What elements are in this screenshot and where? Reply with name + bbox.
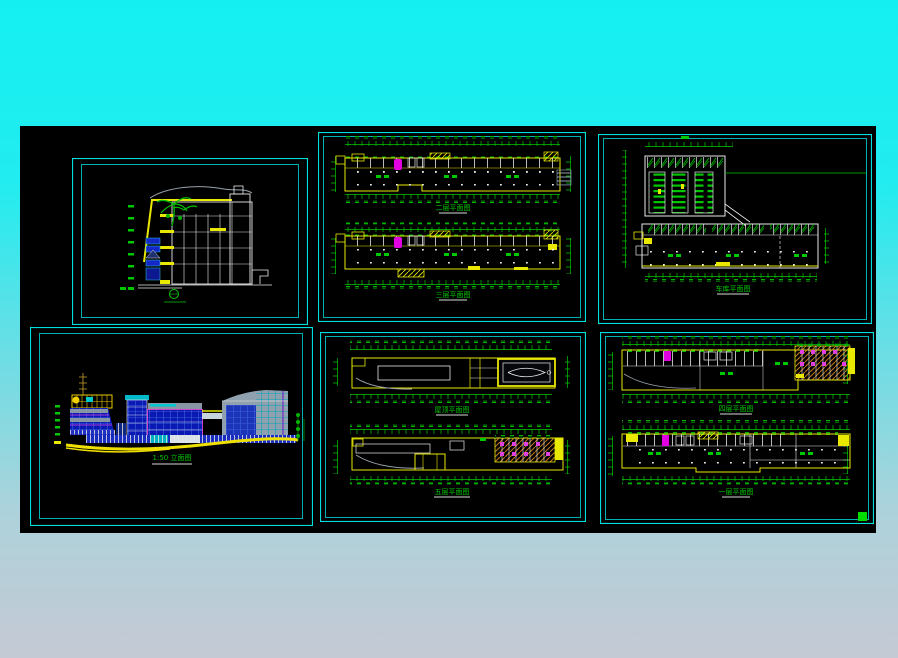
panel-building-section <box>72 158 308 325</box>
roof-trellis <box>72 395 112 408</box>
plan-title: 五层平面图 <box>435 488 470 496</box>
panel-mid-plans: 屋顶平面图 五 <box>320 332 586 522</box>
plan-title: 四层平面图 <box>719 405 754 413</box>
roof-plan: 屋顶平面图 <box>333 340 570 415</box>
panel-parking-plan: 车库平面图 <box>598 134 872 324</box>
fifth-floor-plan: 五层平面图 <box>333 424 570 497</box>
stair-core <box>394 237 402 248</box>
panel-elevation: 1:50 立面图 <box>30 327 313 526</box>
panel-lower-plans: 四层平面图 一层平面图 <box>600 332 874 524</box>
stair-shaft <box>146 238 160 280</box>
facade-tower <box>125 395 149 438</box>
guestroom-block <box>495 435 563 462</box>
selection-grip <box>858 512 867 521</box>
dimension-line <box>345 141 560 146</box>
plan-title: 车库平面图 <box>716 284 751 293</box>
escalator <box>557 170 571 185</box>
parking-block <box>645 156 725 216</box>
drawing-canvas: 二层平面图 三层平面 <box>20 126 876 533</box>
floor-plan-2: 三层平面图 <box>331 222 571 300</box>
dimension-numbers <box>345 136 560 139</box>
level-markers <box>54 405 61 444</box>
page-background: { "colors": { "background_top": "#14f0f2… <box>0 0 898 658</box>
steps <box>252 270 268 284</box>
ramp <box>725 204 750 226</box>
facade-mid-block <box>148 403 203 438</box>
elevation-drawing <box>66 373 304 452</box>
section-drawing <box>138 186 272 302</box>
floor-plan-1: 二层平面图 <box>331 136 571 213</box>
duct-shaft <box>415 454 445 470</box>
parking-stalls <box>646 157 724 168</box>
plan-title: 屋顶平面图 <box>435 406 470 414</box>
facade-left-block <box>70 408 115 435</box>
plan-title: 二层平面图 <box>436 204 471 212</box>
mast <box>79 373 87 395</box>
plan-title: 三层平面图 <box>436 291 471 299</box>
first-floor-plan: 一层平面图 <box>608 420 850 497</box>
room-labels <box>376 253 519 256</box>
ground-line <box>138 285 272 288</box>
guestroom-block <box>795 343 855 380</box>
fourth-floor-plan: 四层平面图 <box>608 336 855 414</box>
facade-right-block <box>222 390 288 435</box>
bridge <box>202 413 222 419</box>
room-labels <box>376 175 519 178</box>
panel-upper-floor-plans: 二层平面图 三层平面 <box>318 132 586 322</box>
stair-core <box>664 351 671 361</box>
level-markers <box>120 205 134 290</box>
stair-core <box>662 435 669 446</box>
dimension-line <box>622 150 627 268</box>
elevation-title: 1:50 立面图 <box>153 453 192 462</box>
plan-title: 一层平面图 <box>719 488 754 496</box>
column-dots <box>348 171 556 174</box>
entry-canopy <box>398 269 424 277</box>
stair-core <box>394 159 402 170</box>
skylight-box <box>498 359 555 386</box>
lower-wing <box>634 224 818 268</box>
